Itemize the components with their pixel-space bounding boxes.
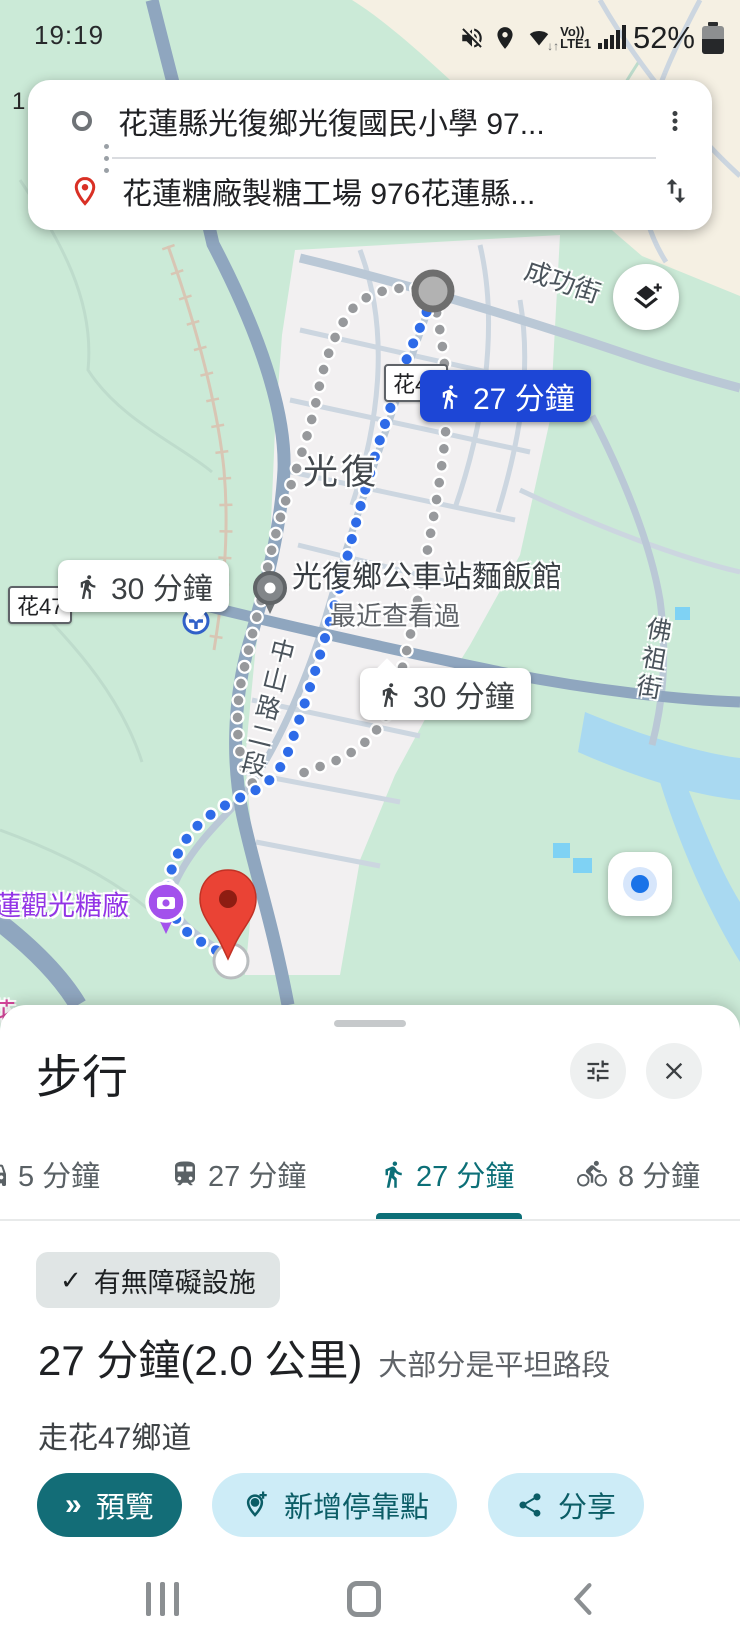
swap-vert-icon — [660, 175, 692, 207]
location-active-icon — [492, 25, 518, 51]
add-stop-button-label: 新增停靠點 — [284, 1484, 429, 1526]
share-button[interactable]: 分享 — [488, 1473, 644, 1537]
network-type-label: Vo)) LTE1 — [560, 26, 591, 50]
walk-icon — [74, 573, 101, 600]
tab-drive[interactable]: 5 分鐘 — [0, 1153, 100, 1195]
close-directions-button[interactable] — [646, 1043, 702, 1099]
add-stop-icon — [240, 1490, 270, 1520]
origin-text: 花蓮縣光復鄉光復國民小學 97... — [118, 99, 618, 143]
google-maps-directions-screen: 1 成功街 光復 花47 花47 11甲 光復鄉公車站麵飯館 最近查看過 中山路… — [0, 0, 740, 1644]
share-button-label: 分享 — [558, 1484, 616, 1526]
eta-badge-selected-label: 27 分鐘 — [473, 374, 575, 418]
origin-circle-icon — [72, 111, 92, 131]
tabs-divider — [0, 1219, 740, 1221]
eta-badge-selected[interactable]: 27 分鐘 — [420, 370, 591, 422]
poi-sublabel-recently-viewed: 最近查看過 — [330, 596, 460, 633]
android-nav-bar — [0, 1570, 740, 1644]
wifi-icon: ↓↑ — [525, 26, 553, 50]
route-via: 走花47鄉道 — [38, 1413, 191, 1457]
tab-bike-label: 8 分鐘 — [618, 1153, 700, 1195]
route-terrain-note: 大部分是平坦路段 — [378, 1342, 610, 1384]
more-options-button[interactable] — [660, 106, 690, 136]
chip-label: 有無障礙設施 — [94, 1261, 256, 1300]
layers-add-icon — [629, 280, 663, 314]
tab-walk-label: 27 分鐘 — [416, 1153, 514, 1195]
home-button[interactable] — [347, 1581, 381, 1617]
tab-walk-selected[interactable]: 27 分鐘 — [378, 1153, 514, 1195]
battery-percent-label: 52% — [633, 20, 695, 56]
origin-field[interactable]: 花蓮縣光復鄉光復國民小學 97... — [28, 86, 712, 156]
bottom-sheet: 步行 5 分鐘 27 分鐘 27 分鐘 8 分鐘 ✓ 有無障礙設施 — [0, 1005, 740, 1644]
walk-icon — [376, 681, 403, 708]
tab-transit-label: 27 分鐘 — [208, 1153, 306, 1195]
preview-button[interactable]: » 預覽 — [37, 1473, 182, 1537]
town-label-guangfu: 光復 — [303, 444, 379, 495]
destination-field[interactable]: 花蓮糖廠製糖工場 976花蓮縣... — [28, 156, 712, 226]
status-time: 19:19 — [34, 20, 104, 51]
route-duration-distance: 27 分鐘(2.0 公里) — [38, 1327, 362, 1388]
map-partial-number-label: 1 — [12, 88, 25, 116]
add-stop-button[interactable]: 新增停靠點 — [212, 1473, 457, 1537]
eta-badge-alt-right[interactable]: 30 分鐘 — [360, 668, 531, 720]
route-options-button[interactable] — [570, 1043, 626, 1099]
car-icon — [0, 1158, 10, 1190]
poi-label-sugar-factory[interactable]: 蓮觀光糖廠 — [0, 884, 129, 923]
status-icons: ↓↑ Vo)) LTE1 52% — [459, 20, 724, 56]
wheelchair-accessible-chip[interactable]: ✓ 有無障礙設施 — [36, 1252, 280, 1308]
eta-badge-alt-right-label: 30 分鐘 — [413, 672, 515, 716]
preview-button-label: 預覽 — [96, 1484, 154, 1526]
bike-icon — [574, 1159, 610, 1189]
sheet-drag-handle[interactable] — [334, 1020, 406, 1027]
poi-label-bus-station-restaurant[interactable]: 光復鄉公車站麵飯館 — [292, 552, 562, 596]
eta-badge-alt-left[interactable]: 30 分鐘 — [58, 560, 229, 612]
tab-drive-label: 5 分鐘 — [18, 1153, 100, 1195]
share-icon — [516, 1491, 544, 1519]
battery-icon — [702, 22, 724, 54]
origin-marker[interactable] — [415, 273, 451, 309]
directions-card: 花蓮縣光復鄉光復國民小學 97... 花蓮糖廠製糖工場 976花蓮縣... — [28, 80, 712, 230]
route-summary: 27 分鐘(2.0 公里) 大部分是平坦路段 — [38, 1327, 610, 1388]
destination-pin-icon — [70, 176, 100, 206]
check-icon: ✓ — [60, 1265, 82, 1296]
my-location-icon — [623, 867, 657, 901]
my-location-button[interactable] — [608, 852, 672, 916]
mute-icon — [459, 25, 485, 51]
swap-button[interactable] — [660, 175, 692, 207]
map-layers-button[interactable] — [613, 264, 679, 330]
sheet-title: 步行 — [36, 1041, 128, 1107]
tune-icon — [584, 1057, 612, 1085]
back-button[interactable] — [570, 1582, 596, 1616]
signal-bars-icon — [598, 25, 626, 51]
recents-button[interactable] — [146, 1582, 179, 1616]
double-chevron-icon: » — [65, 1490, 82, 1520]
more-vert-icon — [660, 106, 690, 136]
destination-text: 花蓮糖廠製糖工場 976花蓮縣... — [122, 169, 622, 213]
close-icon — [660, 1057, 688, 1085]
train-icon — [170, 1159, 200, 1189]
tab-transit[interactable]: 27 分鐘 — [170, 1153, 306, 1195]
tab-bike[interactable]: 8 分鐘 — [574, 1153, 700, 1195]
walk-icon — [378, 1159, 408, 1189]
walk-icon — [436, 383, 463, 410]
